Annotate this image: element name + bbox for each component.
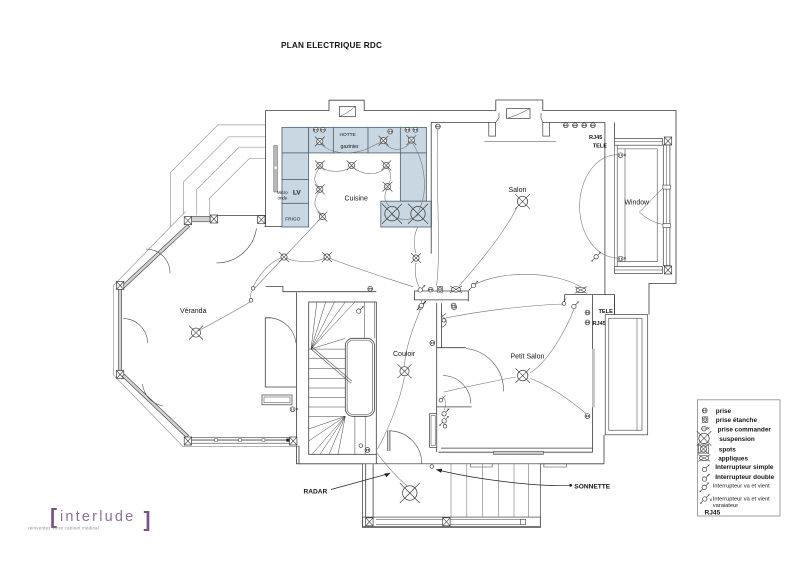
svg-text:réinventez votre cabinet médic: réinventez votre cabinet médical	[28, 526, 99, 531]
svg-text:TELE: TELE	[593, 144, 608, 150]
svg-text:prise commander: prise commander	[718, 426, 772, 433]
svg-text:FRIGO: FRIGO	[285, 217, 300, 223]
svg-text:Interrupteur double: Interrupteur double	[715, 474, 774, 481]
svg-text:Interrupteur va et vient: Interrupteur va et vient	[713, 484, 770, 490]
svg-text:Micro: Micro	[277, 190, 288, 195]
svg-text:RJ45: RJ45	[593, 321, 606, 327]
svg-text:Window: Window	[625, 200, 650, 207]
svg-text:spots: spots	[719, 447, 736, 454]
svg-text:]: ]	[144, 509, 151, 532]
svg-text:prise: prise	[716, 408, 732, 415]
svg-text:Couloir: Couloir	[393, 351, 416, 358]
svg-text:LV: LV	[293, 190, 301, 197]
svg-text:appliques: appliques	[718, 456, 748, 463]
svg-text:Véranda: Véranda	[180, 308, 207, 315]
svg-text:Interrupteur simple: Interrupteur simple	[715, 464, 774, 471]
svg-text:prise étanche: prise étanche	[716, 417, 758, 424]
svg-text:interlude: interlude	[60, 509, 135, 525]
svg-text:Cuisine: Cuisine	[345, 196, 368, 203]
svg-text:Interrupteur va et vient: Interrupteur va et vient	[713, 497, 770, 503]
svg-text:onde: onde	[278, 196, 288, 201]
svg-text:Petit Salon: Petit Salon	[511, 354, 545, 361]
svg-text:gazinier: gazinier	[341, 144, 359, 150]
svg-text:TELE: TELE	[599, 309, 614, 315]
svg-text:Salon: Salon	[509, 187, 527, 194]
svg-text:varaiateur: varaiateur	[713, 503, 738, 509]
svg-text:PLAN ELECTRIQUE RDC: PLAN ELECTRIQUE RDC	[281, 41, 382, 50]
svg-text:RADAR: RADAR	[304, 489, 328, 496]
svg-text:SONNETTE: SONNETTE	[574, 483, 611, 490]
svg-text:RJ45: RJ45	[705, 509, 721, 516]
svg-text:RJ45: RJ45	[589, 135, 602, 141]
svg-text:HOTTE: HOTTE	[340, 132, 356, 138]
svg-text:suspension: suspension	[719, 436, 755, 443]
